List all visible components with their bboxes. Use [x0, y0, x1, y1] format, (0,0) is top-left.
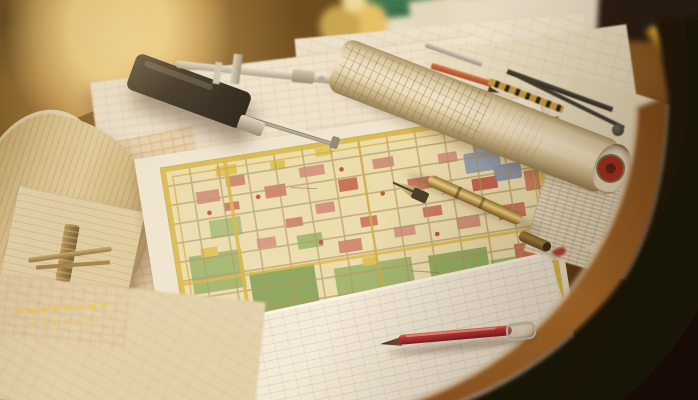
- pen-ring-2: [478, 197, 486, 209]
- red-pen-clip: [505, 320, 537, 341]
- compass-hinge: [612, 124, 624, 136]
- photo-scene: [0, 0, 698, 400]
- pen-ring-1: [454, 186, 462, 198]
